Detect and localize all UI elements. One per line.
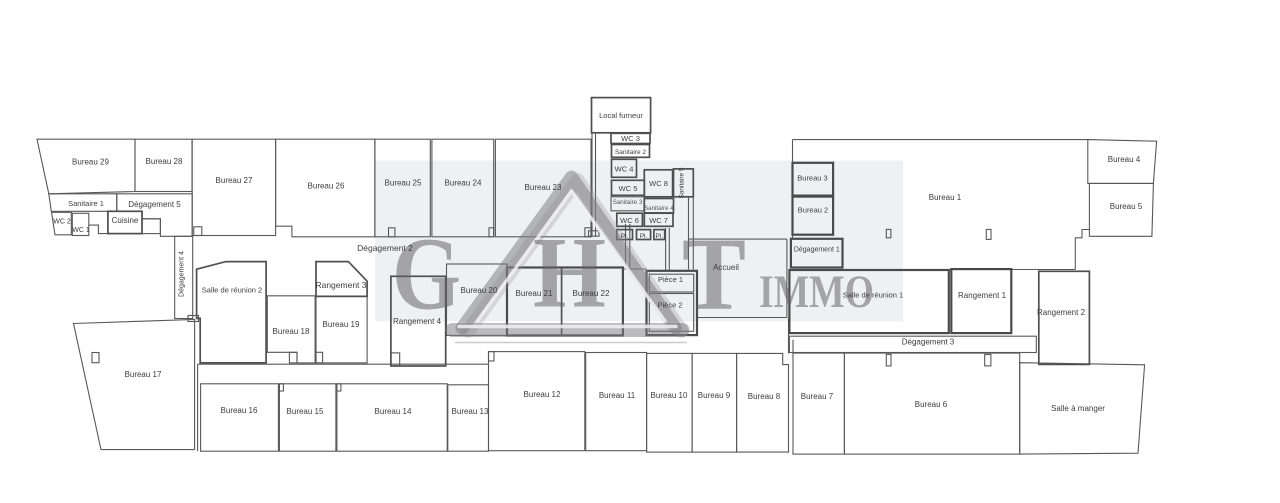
svg-text:WC 2: WC 2 [53, 218, 71, 225]
svg-text:Bureau 7: Bureau 7 [801, 392, 834, 401]
svg-text:Sanitaire 3: Sanitaire 3 [613, 199, 643, 206]
svg-text:Bureau 16: Bureau 16 [221, 406, 258, 415]
svg-text:Salle de réunion 1: Salle de réunion 1 [843, 291, 903, 300]
svg-text:WC 3: WC 3 [621, 134, 640, 143]
svg-text:WC 4: WC 4 [615, 164, 634, 173]
svg-text:Bureau 23: Bureau 23 [525, 183, 562, 192]
svg-text:Sanitaire 1: Sanitaire 1 [68, 199, 104, 208]
svg-text:G: G [392, 217, 461, 332]
svg-text:Sanitaire 2: Sanitaire 2 [615, 149, 646, 156]
svg-text:Bureau 18: Bureau 18 [273, 327, 310, 336]
svg-text:Bureau 20: Bureau 20 [461, 286, 498, 295]
svg-text:Salle à manger: Salle à manger [1051, 404, 1105, 413]
svg-text:Cuisine: Cuisine [112, 216, 139, 225]
svg-text:Bureau 28: Bureau 28 [146, 157, 183, 166]
svg-text:Bureau 25: Bureau 25 [385, 178, 422, 187]
svg-text:Bureau 11: Bureau 11 [599, 391, 636, 400]
svg-text:Bureau 10: Bureau 10 [651, 391, 688, 400]
svg-text:Bureau 14: Bureau 14 [375, 407, 412, 416]
svg-text:Bureau 1: Bureau 1 [929, 193, 962, 202]
svg-text:Dégagement 3: Dégagement 3 [902, 338, 955, 347]
svg-text:Rangement 3: Rangement 3 [315, 280, 366, 290]
svg-text:Sanitaire 4: Sanitaire 4 [644, 205, 674, 212]
svg-text:Bureau 27: Bureau 27 [216, 176, 253, 185]
svg-text:H: H [533, 217, 606, 330]
svg-text:Accueil: Accueil [713, 263, 739, 272]
svg-text:Pl.: Pl. [621, 233, 629, 240]
svg-text:Bureau 22: Bureau 22 [573, 289, 610, 298]
svg-text:Bureau 13: Bureau 13 [452, 407, 489, 416]
svg-text:Bureau 29: Bureau 29 [72, 157, 109, 166]
svg-text:Bureau 2: Bureau 2 [798, 205, 828, 214]
svg-text:Dégagement 1: Dégagement 1 [794, 247, 840, 254]
svg-text:Dégagement 2: Dégagement 2 [357, 243, 413, 253]
svg-text:Sanitaire 5: Sanitaire 5 [678, 167, 685, 198]
svg-text:Local furneur: Local furneur [599, 111, 643, 120]
svg-text:Pl.: Pl. [640, 233, 648, 240]
svg-text:WC 5: WC 5 [619, 184, 638, 193]
svg-text:Rangement 4: Rangement 4 [393, 317, 442, 326]
svg-text:Bureau 5: Bureau 5 [1110, 202, 1143, 211]
svg-text:Bureau 3: Bureau 3 [797, 173, 827, 182]
svg-text:Bureau 21: Bureau 21 [516, 289, 553, 298]
svg-text:WC 1: WC 1 [72, 227, 90, 234]
svg-text:WC 8: WC 8 [649, 179, 668, 188]
svg-text:Dégagement 5: Dégagement 5 [128, 200, 181, 209]
svg-text:Bureau 15: Bureau 15 [287, 407, 324, 416]
svg-text:Bureau 24: Bureau 24 [445, 178, 482, 187]
svg-text:Bureau 6: Bureau 6 [915, 400, 948, 409]
svg-text:Pl.: Pl. [656, 233, 664, 240]
svg-text:Bureau 9: Bureau 9 [698, 391, 731, 400]
svg-text:Bureau 4: Bureau 4 [1108, 155, 1141, 164]
svg-text:WC 6: WC 6 [620, 216, 639, 225]
svg-text:Bureau 8: Bureau 8 [748, 392, 781, 401]
svg-text:Rangement 1: Rangement 1 [958, 291, 1007, 300]
svg-text:Pièce 1: Pièce 1 [658, 275, 683, 284]
svg-text:Dégagement 4: Dégagement 4 [179, 251, 186, 297]
svg-text:Bureau 26: Bureau 26 [308, 181, 345, 190]
svg-text:WC 7: WC 7 [649, 216, 668, 225]
svg-text:Bureau 17: Bureau 17 [125, 370, 162, 379]
svg-text:Pièce 2: Pièce 2 [657, 300, 682, 309]
svg-text:Rangement 2: Rangement 2 [1037, 308, 1086, 317]
svg-text:Bureau 12: Bureau 12 [524, 390, 561, 399]
svg-text:Bureau 19: Bureau 19 [323, 320, 360, 329]
svg-text:Salle de réunion 2: Salle de réunion 2 [202, 285, 262, 294]
svg-text:T: T [682, 217, 746, 332]
